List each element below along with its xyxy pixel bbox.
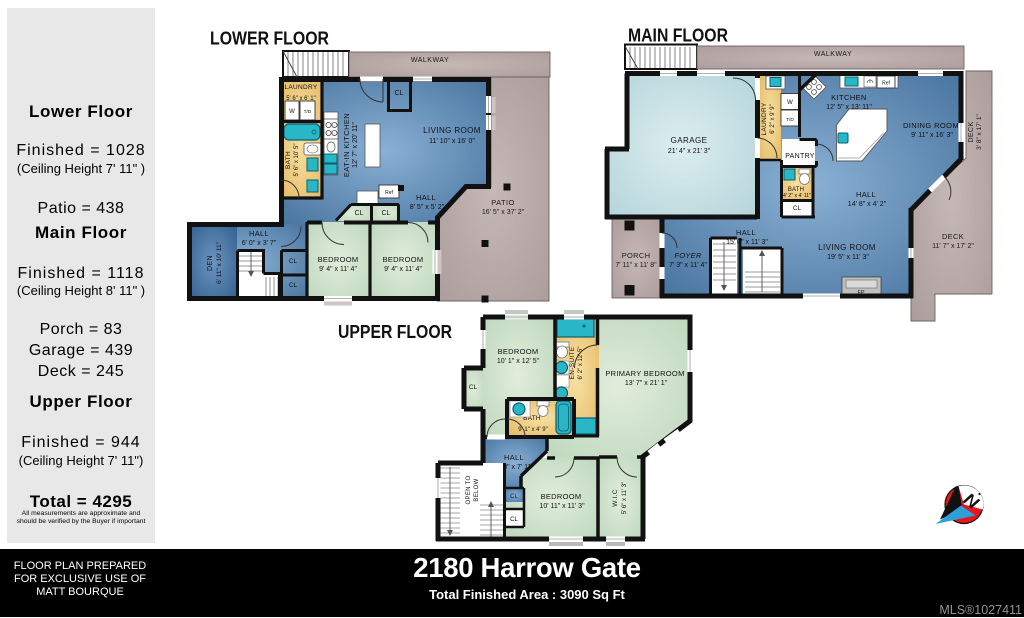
svg-text:BEDROOM: BEDROOM bbox=[541, 492, 582, 501]
svg-text:T/D: T/D bbox=[304, 109, 312, 115]
svg-text:CL: CL bbox=[289, 282, 298, 289]
svg-text:7' 11" x 11' 8": 7' 11" x 11' 8" bbox=[615, 262, 657, 269]
svg-text:DINING ROOM: DINING ROOM bbox=[903, 121, 959, 130]
svg-text:15' 0" x 11' 3": 15' 0" x 11' 3" bbox=[726, 239, 768, 246]
svg-text:Ref: Ref bbox=[385, 190, 393, 196]
svg-text:PRIMARY BEDROOM: PRIMARY BEDROOM bbox=[605, 369, 684, 378]
svg-text:7' 3" x 11' 4": 7' 3" x 11' 4" bbox=[669, 262, 707, 269]
svg-text:FOYER: FOYER bbox=[674, 251, 702, 260]
svg-text:BATH: BATH bbox=[285, 151, 292, 169]
svg-text:WALKWAY: WALKWAY bbox=[411, 57, 449, 64]
svg-text:13' 7" x 21' 1": 13' 7" x 21' 1" bbox=[625, 380, 668, 387]
svg-text:5' 6" x 11' 3": 5' 6" x 11' 3" bbox=[622, 482, 628, 514]
svg-text:BELOW: BELOW bbox=[474, 478, 480, 501]
svg-text:PORCH: PORCH bbox=[622, 251, 651, 260]
svg-text:10' 11" x 11' 3": 10' 11" x 11' 3" bbox=[539, 503, 585, 510]
svg-text:DECK: DECK bbox=[968, 121, 975, 142]
svg-text:CL: CL bbox=[510, 494, 518, 500]
svg-text:21' 4" x 21' 3": 21' 4" x 21' 3" bbox=[668, 148, 711, 155]
svg-text:4' 2" x 4' 11": 4' 2" x 4' 11" bbox=[783, 193, 811, 199]
svg-text:W: W bbox=[787, 100, 793, 106]
svg-text:BEDROOM: BEDROOM bbox=[318, 255, 359, 264]
svg-text:14' 8" x 4' 2": 14' 8" x 4' 2" bbox=[848, 201, 887, 208]
svg-text:9' 11" x 16' 3": 9' 11" x 16' 3" bbox=[911, 132, 953, 139]
svg-text:MAIN FLOOR: MAIN FLOOR bbox=[628, 25, 728, 46]
svg-text:CL: CL bbox=[469, 384, 478, 391]
svg-text:PANTRY: PANTRY bbox=[785, 153, 815, 160]
svg-text:11' 7" x 17' 2": 11' 7" x 17' 2" bbox=[932, 243, 974, 250]
svg-text:5' 6" x 6' 1": 5' 6" x 6' 1" bbox=[286, 96, 316, 102]
svg-text:UPPER FLOOR: UPPER FLOOR bbox=[338, 321, 452, 342]
svg-text:LIVING ROOM: LIVING ROOM bbox=[818, 243, 876, 252]
svg-text:BEDROOM: BEDROOM bbox=[498, 347, 539, 356]
svg-text:3' 8" x 17' 1": 3' 8" x 17' 1" bbox=[976, 113, 983, 149]
svg-text:8' 5" x 5' 2": 8' 5" x 5' 2" bbox=[410, 204, 445, 211]
svg-text:LIVING ROOM: LIVING ROOM bbox=[423, 126, 481, 135]
svg-text:PATIO: PATIO bbox=[491, 198, 514, 207]
svg-text:DEN: DEN bbox=[207, 255, 214, 271]
svg-text:6' 2" x 9' 9": 6' 2" x 9' 9" bbox=[770, 104, 776, 134]
svg-text:9' 4" x 11' 4": 9' 4" x 11' 4" bbox=[384, 266, 422, 273]
svg-text:16' 5" x 37' 2": 16' 5" x 37' 2" bbox=[482, 209, 525, 216]
svg-text:HALL: HALL bbox=[249, 229, 269, 238]
svg-text:CL: CL bbox=[395, 90, 404, 97]
svg-text:LAUNDRY: LAUNDRY bbox=[761, 102, 768, 135]
svg-text:10' 1" x 12' 5": 10' 1" x 12' 5" bbox=[497, 358, 540, 365]
svg-text:EAT-IN KITCHEN: EAT-IN KITCHEN bbox=[342, 113, 351, 177]
svg-text:5' 6" x 10' 5": 5' 6" x 10' 5" bbox=[294, 144, 300, 177]
svg-text:LAUNDRY: LAUNDRY bbox=[284, 84, 317, 91]
svg-text:WALKWAY: WALKWAY bbox=[814, 51, 852, 58]
svg-text:KITCHEN: KITCHEN bbox=[831, 93, 867, 102]
svg-text:HALL: HALL bbox=[856, 190, 876, 199]
svg-text:CL: CL bbox=[510, 517, 518, 523]
svg-text:CL: CL bbox=[382, 210, 391, 217]
svg-text:6' 0" x 3' 7": 6' 0" x 3' 7" bbox=[242, 240, 277, 247]
svg-text:T/D: T/D bbox=[786, 117, 794, 123]
svg-text:BEDROOM: BEDROOM bbox=[383, 255, 424, 264]
svg-text:12' 5" x 13' 11": 12' 5" x 13' 11" bbox=[826, 104, 872, 111]
svg-text:CL: CL bbox=[289, 258, 298, 265]
svg-text:GARAGE: GARAGE bbox=[671, 136, 708, 145]
svg-text:11' 10" x 16' 0": 11' 10" x 16' 0" bbox=[429, 138, 475, 145]
svg-text:6' 11" x 10' 11": 6' 11" x 10' 11" bbox=[216, 241, 223, 284]
svg-text:CL: CL bbox=[355, 210, 364, 217]
svg-text:Ref: Ref bbox=[882, 81, 890, 87]
svg-text:19' 5" x 11' 3": 19' 5" x 11' 3" bbox=[827, 254, 869, 261]
svg-text:CL: CL bbox=[793, 205, 802, 212]
svg-text:W.I.C: W.I.C bbox=[612, 489, 619, 506]
svg-text:12' 7" x 20' 11": 12' 7" x 20' 11" bbox=[352, 122, 359, 168]
svg-text:HALL: HALL bbox=[736, 228, 756, 237]
svg-text:HALL: HALL bbox=[504, 453, 524, 462]
svg-text:DECK: DECK bbox=[942, 232, 964, 241]
svg-text:HALL: HALL bbox=[416, 193, 436, 202]
svg-text:9' 4" x 11' 4": 9' 4" x 11' 4" bbox=[319, 266, 357, 273]
svg-text:OPEN TO: OPEN TO bbox=[466, 476, 472, 505]
svg-text:W: W bbox=[289, 109, 295, 115]
svg-text:LOWER FLOOR: LOWER FLOOR bbox=[210, 28, 329, 49]
